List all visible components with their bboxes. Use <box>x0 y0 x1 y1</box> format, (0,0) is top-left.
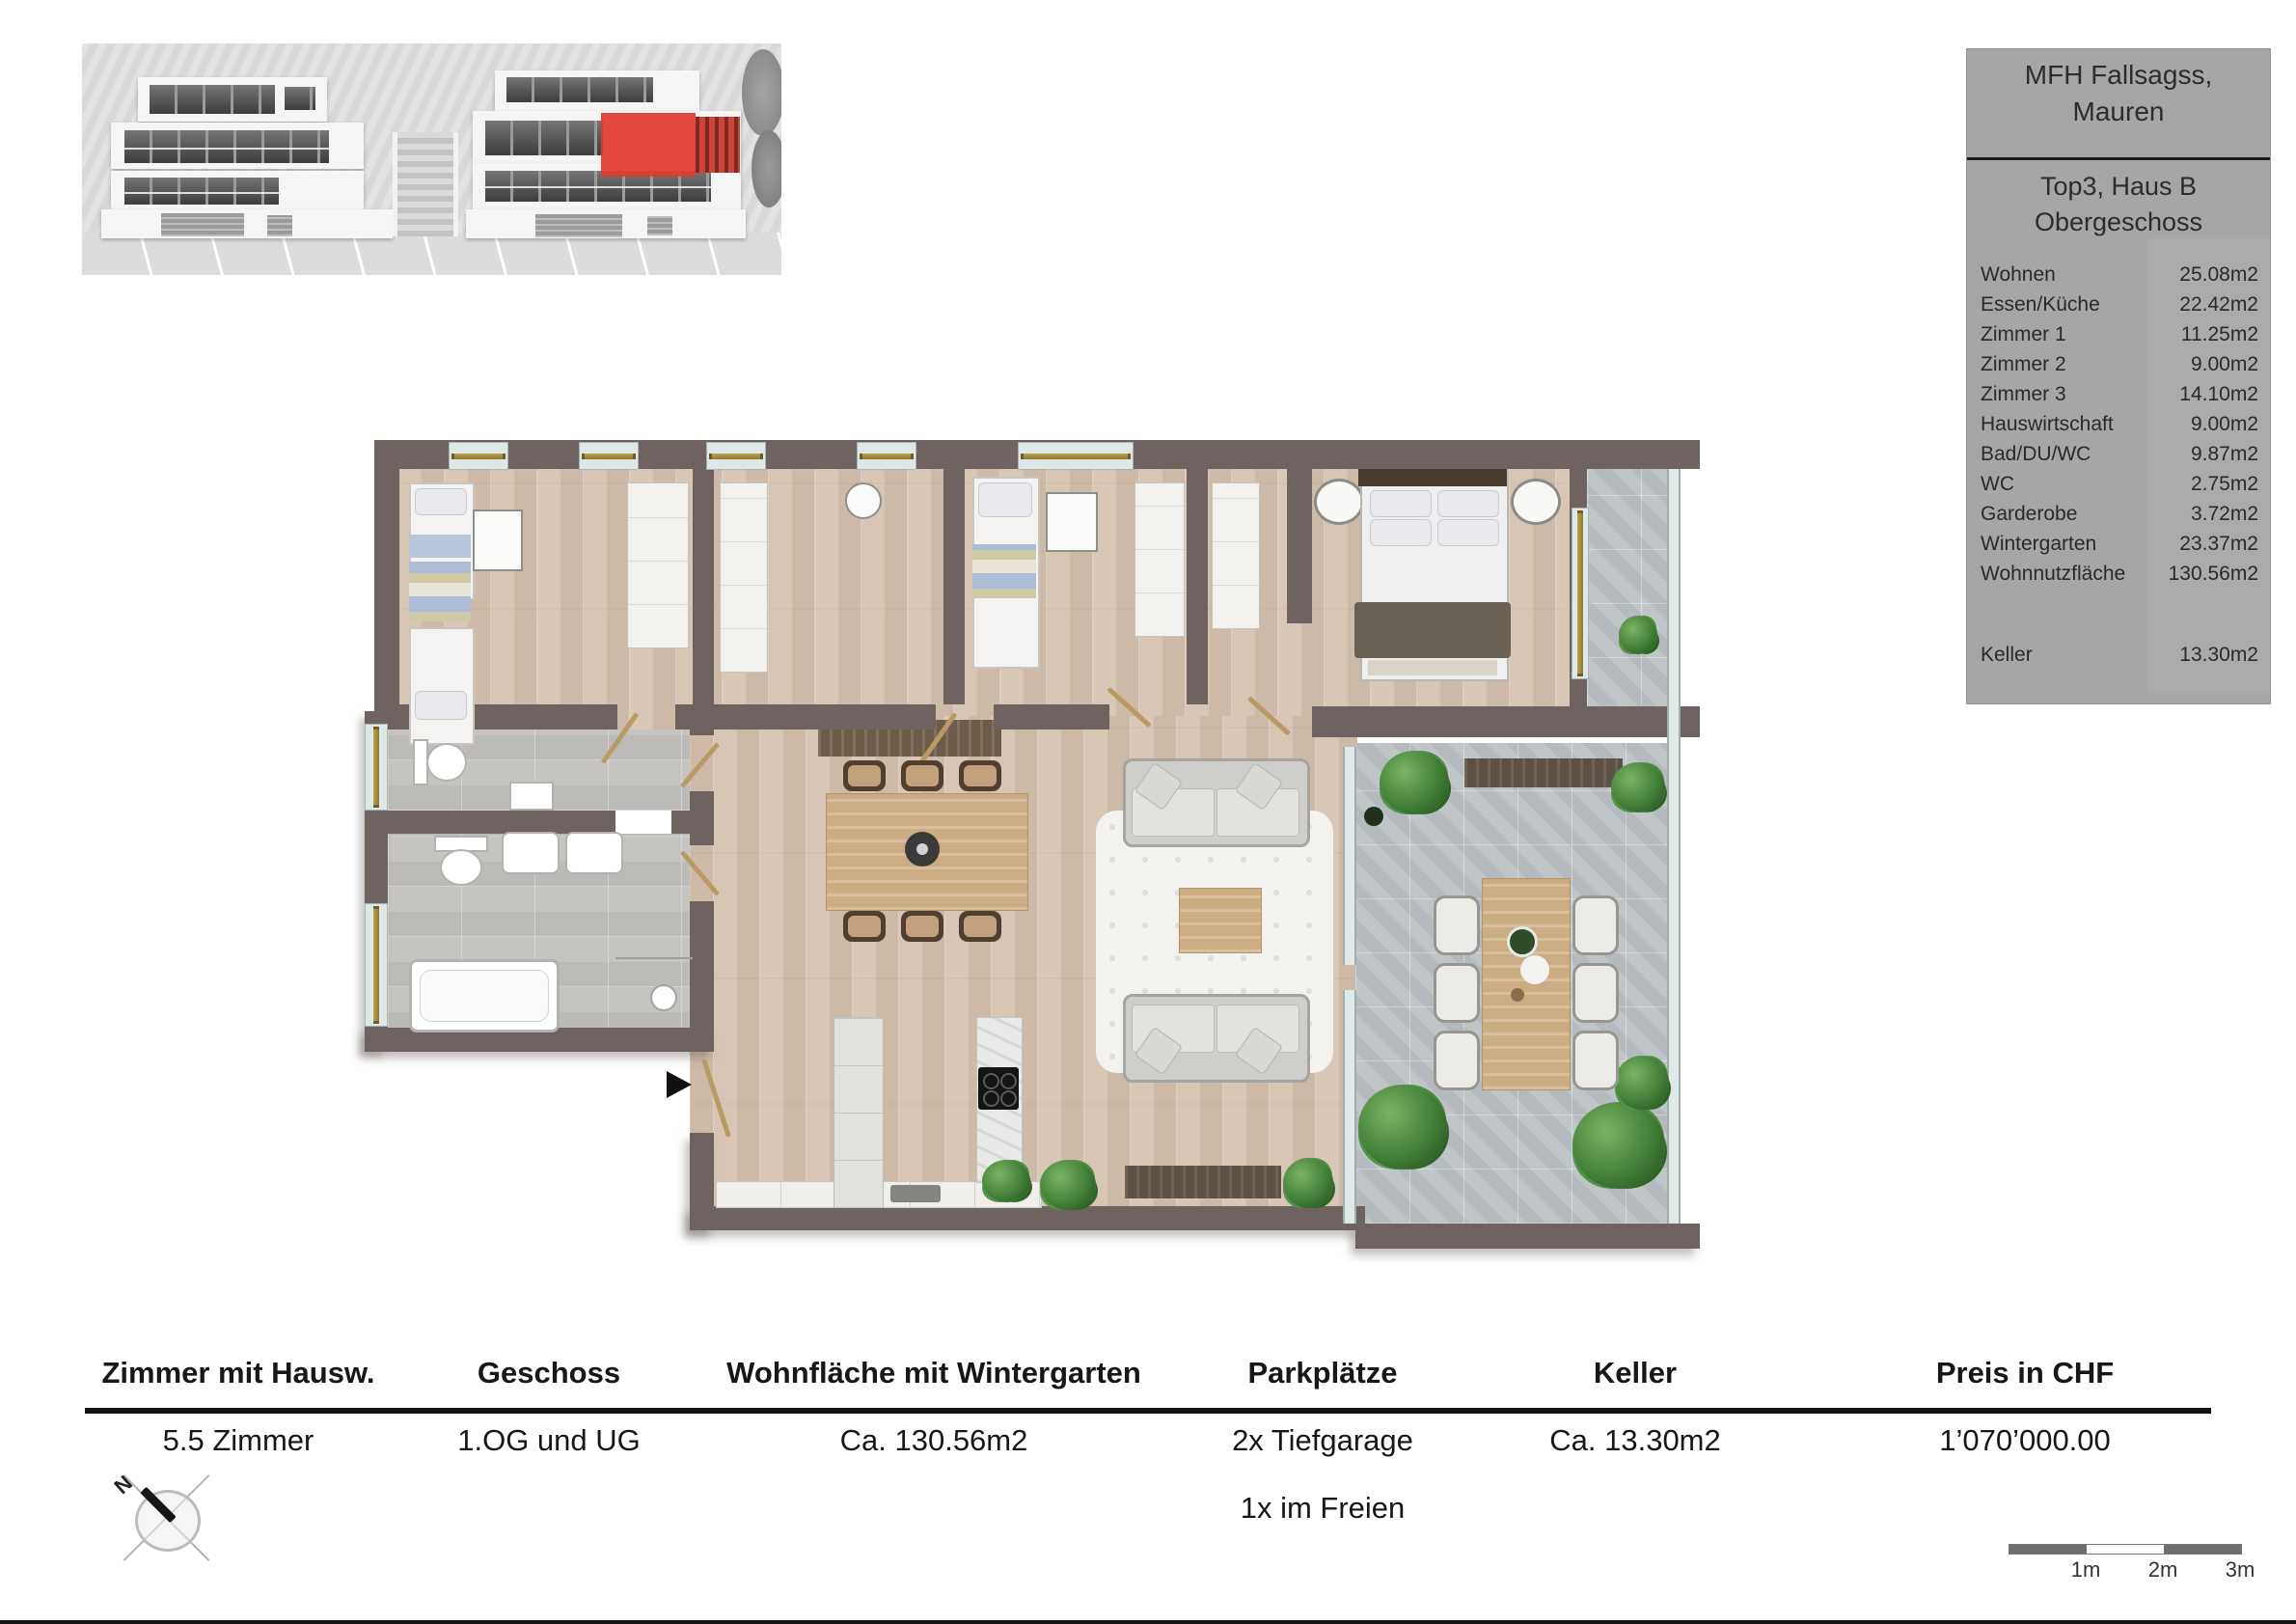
room-label: Garderobe <box>1981 499 2077 529</box>
value-price: 1’070’000.00 <box>1851 1423 2199 1458</box>
room-value: 25.08m2 <box>2179 260 2258 289</box>
wall-segment <box>1355 1224 1700 1249</box>
chair <box>1434 963 1480 1023</box>
room-row: Garderobe3.72m2 <box>1967 499 2270 529</box>
railing <box>485 186 711 188</box>
bed-sheet <box>409 535 471 558</box>
kitchen-sink <box>890 1185 941 1202</box>
toilet <box>440 849 482 886</box>
glass-wall <box>1343 747 1356 965</box>
col-header-cellar: Keller <box>1462 1356 1809 1390</box>
wall-segment <box>1187 469 1208 704</box>
wall-segment <box>943 469 965 704</box>
wall-segment <box>374 440 399 729</box>
bed-runner <box>1368 660 1497 675</box>
sink <box>502 832 560 874</box>
window <box>857 442 916 470</box>
window-frame <box>582 454 636 459</box>
highlighted-unit-overlay-side <box>696 117 740 173</box>
room-value: 22.42m2 <box>2179 289 2258 319</box>
chair-seat <box>906 916 939 937</box>
chair <box>1572 1031 1619 1090</box>
room-label: Wohnnutzfläche <box>1981 559 2125 589</box>
room-label: Zimmer 2 <box>1981 349 2066 379</box>
chair-seat <box>964 916 997 937</box>
window <box>365 903 388 1027</box>
wall-segment <box>1287 469 1312 623</box>
sofa <box>1123 758 1310 847</box>
value-parking-2: 1x im Freien <box>1149 1491 1496 1526</box>
value-area: Ca. 130.56m2 <box>712 1423 1156 1458</box>
plant <box>1380 751 1449 814</box>
building-photo <box>82 43 781 275</box>
room-value: 3.72m2 <box>2191 499 2258 529</box>
bed-blanket <box>409 562 471 621</box>
wall-segment <box>1312 706 1700 737</box>
value-cellar: Ca. 13.30m2 <box>1462 1423 1809 1458</box>
chair-seat <box>964 765 997 786</box>
left-building-base <box>101 209 393 238</box>
wall-segment <box>690 1206 1365 1230</box>
wall-segment <box>671 811 690 834</box>
window-band <box>485 121 603 155</box>
bed-pillow <box>415 488 467 515</box>
project-title-line2: Mauren <box>1967 94 2270 130</box>
desk <box>473 509 523 571</box>
bed-pillow <box>978 482 1032 517</box>
page-bottom-rule <box>0 1620 2296 1624</box>
chair <box>901 911 943 942</box>
chair <box>1434 1031 1480 1090</box>
garage-door <box>535 214 622 237</box>
table-bowl-center <box>916 843 928 855</box>
room-label: Keller <box>1981 640 2033 670</box>
single-bed <box>409 627 475 745</box>
window-band <box>124 178 279 205</box>
nightstand <box>1511 479 1561 525</box>
room-label: Essen/Küche <box>1981 289 2100 319</box>
room-row: WC2.75m2 <box>1967 469 2270 499</box>
desk <box>1046 492 1098 552</box>
table-plate <box>1507 926 1538 957</box>
floorplan-sheet: MFH Fallsagss, Mauren Top3, Haus B Oberg… <box>0 0 2296 1624</box>
sink <box>509 782 554 811</box>
room-row: Zimmer 314.10m2 <box>1967 379 2270 409</box>
shower-partition <box>615 957 693 959</box>
kitchen-tall-cabinet <box>834 1017 884 1208</box>
wintergarten-table <box>1482 878 1571 1090</box>
bed-pillow <box>1370 519 1432 546</box>
garage-door <box>161 213 244 236</box>
entry-arrow-icon <box>667 1071 692 1098</box>
bed-blanket <box>972 544 1036 598</box>
window-band <box>506 77 653 102</box>
railing <box>124 192 279 194</box>
bed-headboard <box>1358 469 1507 486</box>
toilet <box>426 743 467 782</box>
room-row: Zimmer 29.00m2 <box>1967 349 2270 379</box>
plant <box>1283 1158 1333 1208</box>
bathtub-basin <box>420 970 549 1022</box>
bathtub <box>409 959 560 1032</box>
wall-segment <box>690 901 714 1028</box>
scale-segment <box>2009 1545 2087 1554</box>
outdoor-stairs <box>393 132 458 236</box>
window <box>706 442 766 470</box>
panel-divider <box>1967 157 2270 160</box>
chair <box>901 760 943 791</box>
room-label: Zimmer 1 <box>1981 319 2066 349</box>
room-label: Zimmer 3 <box>1981 379 2066 409</box>
unit-subtitle-line1: Top3, Haus B <box>1967 169 2270 205</box>
nightstand <box>1314 479 1364 525</box>
wall-segment <box>675 704 936 729</box>
value-floor: 1.OG und UG <box>375 1423 723 1458</box>
room-value: 13.30m2 <box>2179 640 2258 670</box>
wardrobe <box>627 482 689 648</box>
bed-pillow <box>1370 490 1432 517</box>
wardrobe <box>1212 482 1260 629</box>
stool <box>845 482 882 519</box>
chair <box>1572 895 1619 955</box>
burner <box>1000 1090 1017 1107</box>
room-label: WC <box>1981 469 2014 499</box>
project-title-line1: MFH Fallsagss, <box>1967 57 2270 94</box>
window-frame <box>373 727 379 808</box>
wall-segment <box>693 469 714 704</box>
left-building-floor2 <box>111 123 364 169</box>
garage-door <box>647 216 672 235</box>
window <box>579 442 639 470</box>
sideboard <box>1464 758 1623 787</box>
col-header-area: Wohnfläche mit Wintergarten <box>712 1356 1156 1390</box>
tile-floor-balcony <box>1587 469 1677 712</box>
window <box>365 724 388 811</box>
room-value: 9.00m2 <box>2191 409 2258 439</box>
keller-row: Keller13.30m2 <box>1967 640 2270 670</box>
chair <box>843 911 886 942</box>
col-header-parking: Parkplätze <box>1149 1356 1496 1390</box>
room-value: 9.87m2 <box>2191 439 2258 469</box>
window-frame <box>451 454 506 459</box>
window-frame <box>1577 510 1583 676</box>
tree <box>742 49 781 136</box>
room-value: 9.00m2 <box>2191 349 2258 379</box>
room-row: Zimmer 111.25m2 <box>1967 319 2270 349</box>
bed-blanket <box>1354 602 1511 658</box>
window-band <box>124 130 329 163</box>
project-title: MFH Fallsagss, Mauren <box>1967 57 2270 130</box>
room-label: Hauswirtschaft <box>1981 409 2114 439</box>
room-value: 11.25m2 <box>2181 319 2258 349</box>
window-frame <box>709 454 763 459</box>
room-label: Bad/DU/WC <box>1981 439 2091 469</box>
wardrobe <box>1134 482 1185 637</box>
chair-seat <box>848 765 881 786</box>
wall-segment <box>994 704 1109 729</box>
window <box>449 442 508 470</box>
plant <box>1358 1085 1447 1170</box>
plant <box>1615 1056 1669 1110</box>
room-row: Bad/DU/WC9.87m2 <box>1967 439 2270 469</box>
window-band <box>285 87 315 110</box>
bed-pillow <box>1437 490 1499 517</box>
col-header-rooms: Zimmer mit Hausw. <box>65 1356 412 1390</box>
plant <box>1572 1102 1665 1189</box>
col-header-price: Preis in CHF <box>1851 1356 2199 1390</box>
chair-seat <box>906 765 939 786</box>
room-row: Hauswirtschaft9.00m2 <box>1967 409 2270 439</box>
scale-segment <box>2164 1545 2241 1554</box>
glass-wall <box>1343 990 1356 1224</box>
room-value: 2.75m2 <box>2191 469 2258 499</box>
scale-label-1m: 1m <box>2057 1557 2115 1583</box>
scale-bar: 1m 2m 3m <box>2003 1538 2263 1592</box>
room-row: Essen/Küche22.42m2 <box>1967 289 2270 319</box>
room-row: Wohnen25.08m2 <box>1967 260 2270 289</box>
window <box>1018 442 1134 470</box>
window-frame <box>373 906 379 1024</box>
compass-north-label: N <box>109 1471 137 1500</box>
wardrobe <box>720 482 768 673</box>
burner <box>983 1073 999 1089</box>
chair <box>843 760 886 791</box>
chair <box>959 911 1001 942</box>
chair-seat <box>848 916 881 937</box>
chair <box>1434 895 1480 955</box>
sideboard <box>1125 1166 1281 1198</box>
sink <box>565 832 623 874</box>
table-rule <box>85 1408 2211 1414</box>
wall-segment <box>388 811 615 834</box>
photo-ground <box>82 233 781 275</box>
window-frame <box>860 454 914 459</box>
room-row: Wintergarten23.37m2 <box>1967 529 2270 559</box>
coffee-table <box>1179 888 1262 953</box>
wall-segment <box>690 729 714 735</box>
room-label: Wohnen <box>1981 260 2056 289</box>
value-parking: 2x Tiefgarage <box>1149 1423 1496 1458</box>
window-frame <box>1021 454 1131 459</box>
glass-wall <box>1667 469 1681 1224</box>
plant <box>982 1160 1030 1202</box>
bed-pillow <box>1437 519 1499 546</box>
room-value: 130.56m2 <box>2169 559 2258 589</box>
left-building-floor1 <box>111 171 364 209</box>
chair <box>959 760 1001 791</box>
plant-pot <box>1364 807 1383 826</box>
right-building-base <box>466 209 746 238</box>
chair <box>1572 963 1619 1023</box>
scale-bar-frame <box>2009 1544 2242 1555</box>
room-row: Wohnnutzfläche130.56m2 <box>1967 559 2270 589</box>
info-panel: MFH Fallsagss, Mauren Top3, Haus B Oberg… <box>1966 48 2271 704</box>
room-value: 14.10m2 <box>2179 379 2258 409</box>
right-building-penthouse <box>495 70 699 111</box>
garage-door <box>267 215 292 236</box>
burner <box>983 1090 999 1107</box>
sofa <box>1123 994 1310 1083</box>
table-bowl-small <box>1511 988 1524 1002</box>
window-band <box>150 85 275 114</box>
wall-segment <box>690 791 714 845</box>
room-value: 23.37m2 <box>2179 529 2258 559</box>
cooktop <box>978 1067 1019 1110</box>
window <box>1572 508 1589 679</box>
unit-subtitle: Top3, Haus B Obergeschoss <box>1967 169 2270 240</box>
table-plate <box>1520 955 1549 984</box>
highlighted-unit-overlay <box>601 113 696 177</box>
compass: N <box>108 1471 262 1586</box>
col-header-floor: Geschoss <box>375 1356 723 1390</box>
scale-label-2m: 2m <box>2134 1557 2192 1583</box>
bed-pillow <box>415 691 467 720</box>
burner <box>1000 1073 1017 1089</box>
railing <box>124 148 329 150</box>
plant <box>1611 762 1665 812</box>
left-building-penthouse <box>138 77 327 122</box>
scale-label-3m: 3m <box>2211 1557 2269 1583</box>
value-rooms: 5.5 Zimmer <box>65 1423 412 1458</box>
tree <box>752 130 781 207</box>
plant <box>1040 1160 1096 1210</box>
floor-plan <box>365 427 1706 1249</box>
unit-subtitle-line2: Obergeschoss <box>1967 205 2270 240</box>
plant <box>1619 616 1657 654</box>
shower-head <box>650 984 677 1011</box>
room-label: Wintergarten <box>1981 529 2096 559</box>
